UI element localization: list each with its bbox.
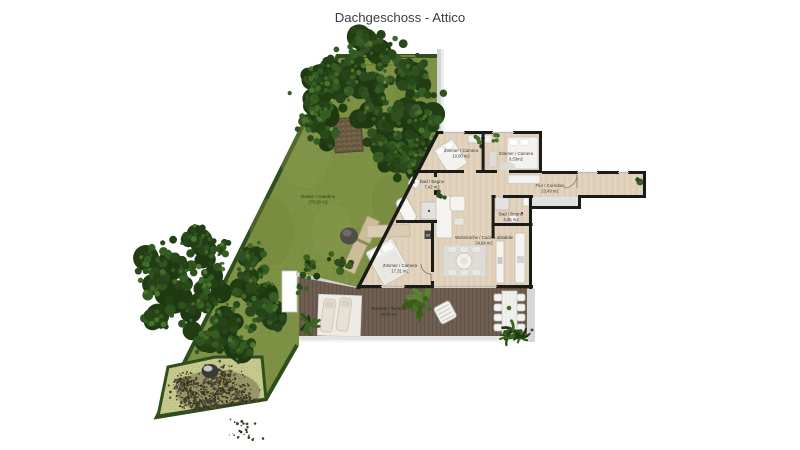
svg-text:9,53m2: 9,53m2 xyxy=(509,157,524,162)
svg-text:17,31 m2: 17,31 m2 xyxy=(391,269,409,274)
svg-text:4,36 m2: 4,36 m2 xyxy=(503,217,519,222)
svg-text:98,80 m2: 98,80 m2 xyxy=(381,312,398,317)
svg-text:Zimmer / Camera: Zimmer / Camera xyxy=(383,263,418,268)
svg-text:10,00 m2: 10,00 m2 xyxy=(452,154,470,159)
svg-text:M: M xyxy=(426,233,429,238)
svg-text:Garten / Giardino: Garten / Giardino xyxy=(301,194,336,199)
svg-text:34,94 m2: 34,94 m2 xyxy=(475,241,493,246)
svg-text:Zimmer / Camera: Zimmer / Camera xyxy=(444,148,479,153)
svg-text:170,99 m2: 170,99 m2 xyxy=(308,200,328,205)
svg-text:7,42 m2: 7,42 m2 xyxy=(424,185,440,190)
svg-text:Terrasse / Terrazza: Terrasse / Terrazza xyxy=(371,306,407,311)
svg-text:Wohnküche / Cucina abitabile: Wohnküche / Cucina abitabile xyxy=(455,235,514,240)
svg-text:23,49 m2: 23,49 m2 xyxy=(541,189,559,194)
svg-text:Dachgeschoss - Attico: Dachgeschoss - Attico xyxy=(335,10,465,25)
svg-text:Bad / Bagno: Bad / Bagno xyxy=(499,212,524,217)
svg-text:Zimmer / Camera: Zimmer / Camera xyxy=(499,151,534,156)
svg-text:Bad / Bagno: Bad / Bagno xyxy=(420,179,445,184)
svg-text:Flur / Corridoio: Flur / Corridoio xyxy=(535,183,565,188)
